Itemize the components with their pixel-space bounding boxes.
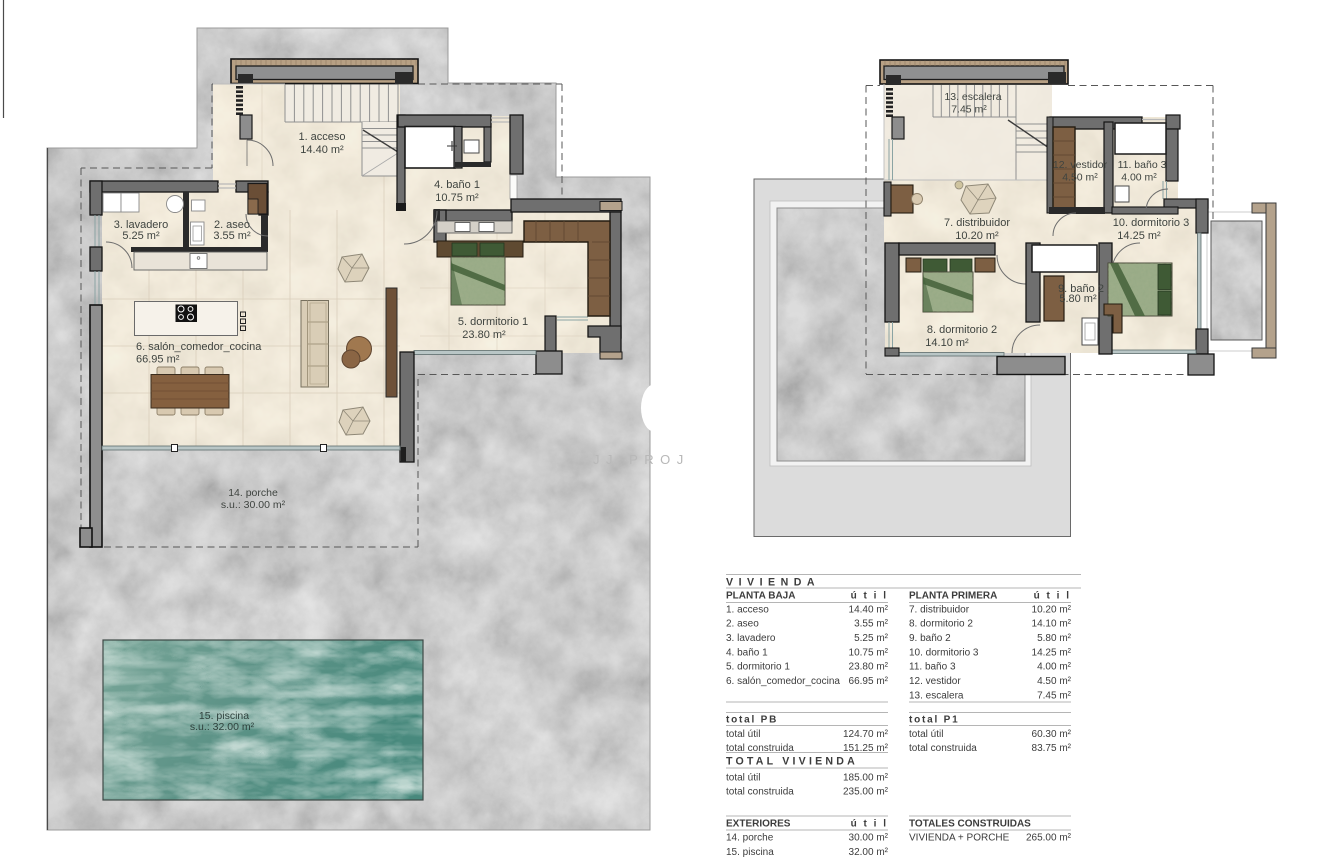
svg-text:s.u.: 30.00 m²: s.u.: 30.00 m² [221,499,286,511]
svg-text:4.50 m²: 4.50 m² [1037,676,1072,687]
svg-text:83.75 m²: 83.75 m² [1032,743,1072,754]
svg-text:66.95 m²: 66.95 m² [136,354,180,366]
svg-text:JJ PROJ: JJ PROJ [593,452,690,467]
svg-text:14.25 m²: 14.25 m² [1032,647,1072,658]
svg-text:32.00 m²: 32.00 m² [849,847,889,858]
svg-text:14.10 m²: 14.10 m² [1032,619,1072,630]
svg-text:total PB: total PB [726,715,778,726]
svg-text:VIVIENDA: VIVIENDA [726,577,820,589]
svg-text:2. aseo: 2. aseo [726,619,759,630]
svg-text:4.50 m²: 4.50 m² [1062,172,1098,184]
svg-text:5.80 m²: 5.80 m² [1059,293,1097,305]
svg-text:5.80 m²: 5.80 m² [1037,633,1072,644]
svg-text:9. baño 2: 9. baño 2 [909,633,951,644]
svg-text:14.10 m²: 14.10 m² [925,337,969,349]
svg-text:5.25 m²: 5.25 m² [122,230,160,242]
svg-text:7.45 m²: 7.45 m² [1037,690,1072,701]
svg-text:total útil: total útil [726,729,760,740]
svg-text:1. acceso: 1. acceso [726,604,769,615]
svg-text:7. distribuidor: 7. distribuidor [909,604,970,615]
svg-text:7. distribuidor: 7. distribuidor [944,217,1010,229]
svg-text:12. vestidor: 12. vestidor [909,676,961,687]
svg-text:PLANTA BAJA: PLANTA BAJA [726,591,795,602]
svg-text:7.45 m²: 7.45 m² [951,104,987,116]
svg-text:30.00 m²: 30.00 m² [849,833,889,844]
svg-text:10.75 m²: 10.75 m² [849,647,889,658]
svg-text:3.55 m²: 3.55 m² [213,230,251,242]
svg-text:total construida: total construida [726,743,794,754]
svg-text:13. escalera: 13. escalera [944,91,1001,103]
svg-text:10. dormitorio 3: 10. dormitorio 3 [1113,217,1189,229]
svg-text:12. vestidor: 12. vestidor [1053,159,1108,171]
svg-text:10.20 m²: 10.20 m² [955,230,999,242]
svg-text:124.70 m²: 124.70 m² [843,729,889,740]
svg-text:265.00 m²: 265.00 m² [1026,833,1072,844]
svg-text:14.40 m²: 14.40 m² [300,144,344,156]
svg-text:PLANTA PRIMERA: PLANTA PRIMERA [909,591,997,602]
svg-text:11. baño 3: 11. baño 3 [1118,159,1167,171]
svg-text:10. dormitorio 3: 10. dormitorio 3 [909,647,979,658]
svg-text:ú t i l: ú t i l [851,591,888,602]
svg-text:5.25 m²: 5.25 m² [854,633,889,644]
svg-text:total construida: total construida [726,787,794,798]
svg-text:185.00 m²: 185.00 m² [843,773,889,784]
svg-text:6. salón_comedor_cocina: 6. salón_comedor_cocina [726,676,840,687]
svg-text:151.25 m²: 151.25 m² [843,743,889,754]
svg-text:8. dormitorio 2: 8. dormitorio 2 [909,619,973,630]
svg-text:60.30 m²: 60.30 m² [1032,729,1072,740]
svg-text:10.20 m²: 10.20 m² [1032,604,1072,615]
svg-text:5. dormitorio 1: 5. dormitorio 1 [458,316,528,328]
svg-text:VIVIENDA + PORCHE: VIVIENDA + PORCHE [909,833,1010,844]
svg-text:TOTAL VIVIENDA: TOTAL VIVIENDA [726,756,858,768]
svg-text:1. acceso: 1. acceso [298,131,345,143]
svg-text:4. baño 1: 4. baño 1 [726,647,768,658]
svg-text:4. baño 1: 4. baño 1 [434,179,480,191]
svg-text:8. dormitorio 2: 8. dormitorio 2 [927,324,997,336]
svg-text:total construida: total construida [909,743,977,754]
svg-text:14.40 m²: 14.40 m² [849,604,889,615]
svg-text:11. baño 3: 11. baño 3 [909,662,956,673]
svg-text:3. lavadero: 3. lavadero [726,633,776,644]
svg-text:s.u.: 32.00 m²: s.u.: 32.00 m² [190,721,255,733]
svg-text:total útil: total útil [909,729,943,740]
svg-text:total útil: total útil [726,773,760,784]
svg-text:23.80 m²: 23.80 m² [462,329,506,341]
svg-text:EXTERIORES: EXTERIORES [726,819,791,830]
svg-text:13. escalera: 13. escalera [909,690,964,701]
svg-text:14.25 m²: 14.25 m² [1117,230,1161,242]
svg-text:TOTALES CONSTRUIDAS: TOTALES CONSTRUIDAS [909,819,1031,830]
svg-text:4.00 m²: 4.00 m² [1121,172,1157,184]
svg-text:235.00 m²: 235.00 m² [843,787,889,798]
svg-text:total P1: total P1 [909,715,960,726]
svg-text:5. dormitorio 1: 5. dormitorio 1 [726,662,790,673]
svg-text:ú t i l: ú t i l [851,819,888,830]
svg-text:4.00 m²: 4.00 m² [1037,662,1072,673]
svg-text:10.75 m²: 10.75 m² [435,192,479,204]
svg-text:3.55 m²: 3.55 m² [854,619,889,630]
svg-text:ú t i l: ú t i l [1034,591,1071,602]
svg-text:23.80 m²: 23.80 m² [849,662,889,673]
svg-text:14. porche: 14. porche [228,487,278,499]
svg-text:66.95 m²: 66.95 m² [849,676,889,687]
svg-text:15. piscina: 15. piscina [726,847,774,858]
svg-text:6. salón_comedor_cocina: 6. salón_comedor_cocina [136,341,262,353]
svg-text:14. porche: 14. porche [726,833,774,844]
